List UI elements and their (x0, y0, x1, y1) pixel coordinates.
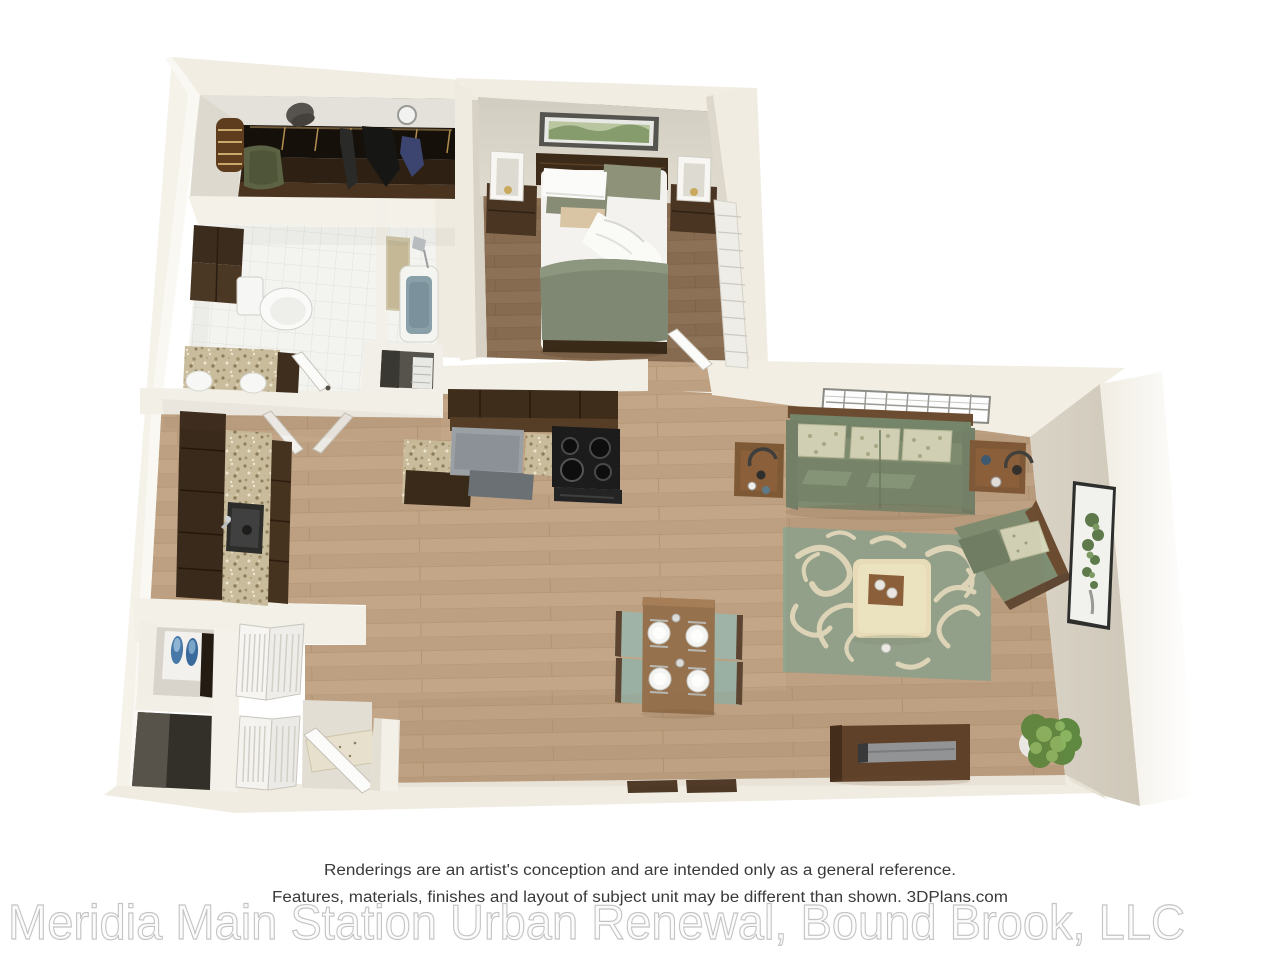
svg-text:Meridia Main Station Urban Ren: Meridia Main Station Urban Renewal, Boun… (8, 896, 1185, 950)
svg-text:Renderings are an artist's con: Renderings are an artist's conception an… (324, 862, 956, 879)
